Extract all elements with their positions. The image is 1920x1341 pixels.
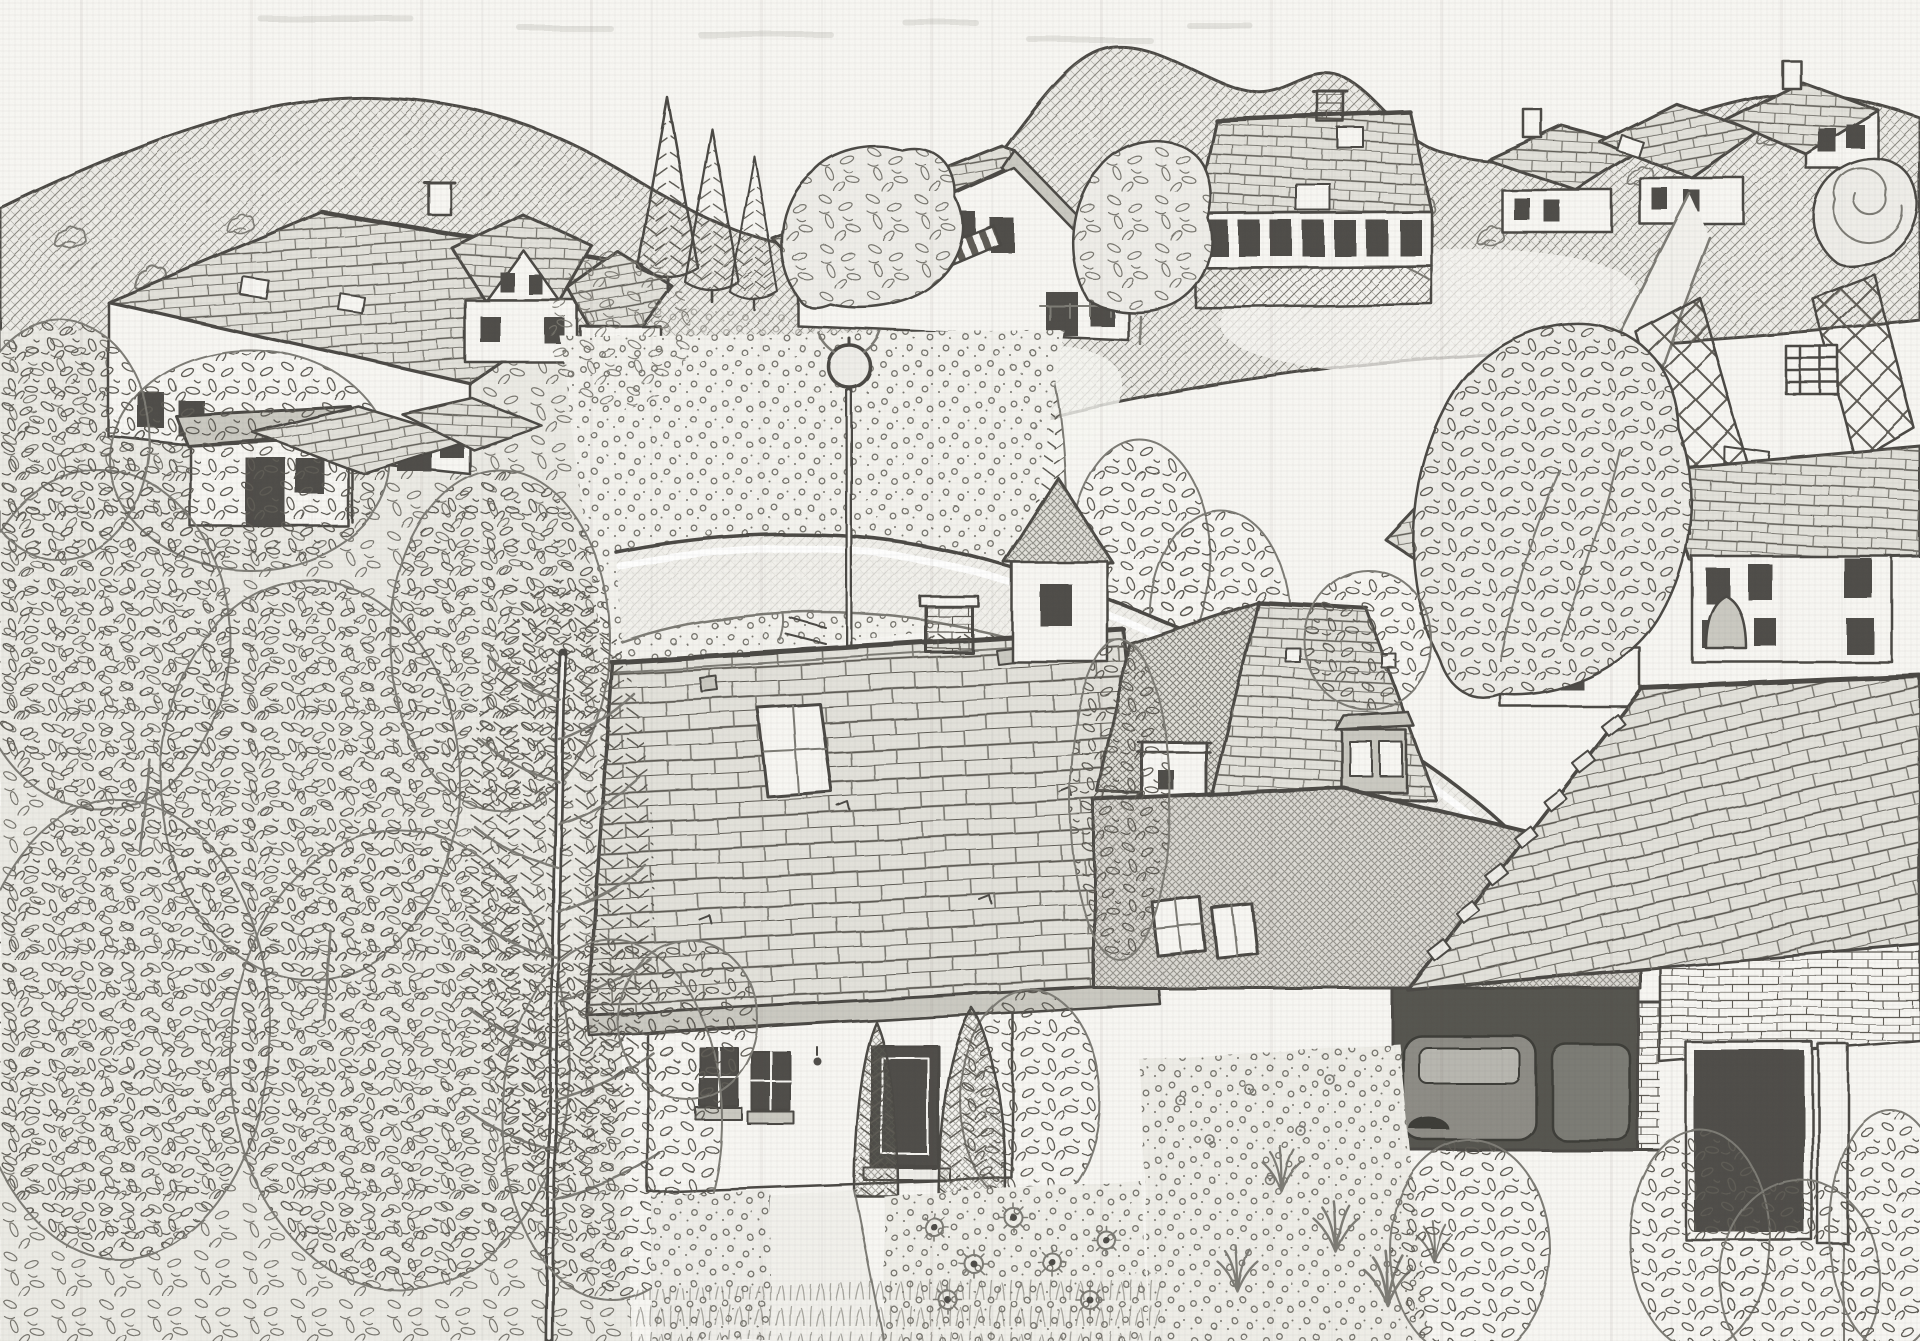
dormer-window — [1380, 742, 1402, 776]
window — [1818, 128, 1836, 152]
cluster-blend-canopy — [550, 250, 690, 410]
flower-box — [748, 1112, 794, 1124]
dormer-window — [1350, 742, 1372, 776]
farmhouse-skylight — [339, 294, 365, 314]
brick-chimney — [926, 604, 972, 652]
window — [1754, 618, 1776, 646]
dormer — [1336, 712, 1414, 792]
canopy-top-center — [781, 146, 963, 307]
seam-bush — [1070, 640, 1170, 960]
farmhouse-skylight — [241, 277, 269, 299]
brick-wall-right — [1630, 944, 1920, 1341]
window — [1846, 618, 1874, 654]
chimney — [1782, 60, 1800, 88]
window — [1544, 200, 1560, 222]
pencil-sketch-canvas: Pencil sketch of a hillside village with… — [0, 0, 1920, 1341]
garage-skylight — [1212, 904, 1257, 958]
white-house-right — [1652, 446, 1920, 662]
window — [1748, 564, 1772, 600]
windshield — [1420, 1048, 1520, 1084]
window — [480, 316, 500, 342]
scan-smudges — [260, 18, 1250, 40]
parked-car — [1404, 1036, 1630, 1140]
brick-chimney — [1318, 92, 1344, 122]
roof-skylight — [758, 704, 832, 797]
skylight — [1338, 128, 1364, 148]
left-bush-upper — [618, 940, 758, 1100]
skylight — [1296, 184, 1330, 210]
chimney — [428, 182, 450, 214]
sketch-page: Pencil sketch of a hillside village with… — [0, 0, 1920, 1341]
window — [1514, 198, 1530, 220]
window — [1040, 584, 1072, 626]
garage-skylight — [1152, 897, 1205, 956]
window — [1652, 188, 1668, 210]
road-bend-tree — [1304, 570, 1432, 710]
gable-window — [528, 274, 542, 294]
window — [1846, 124, 1864, 148]
rose-bush — [1390, 1140, 1550, 1341]
roof-vent — [1286, 648, 1300, 662]
balcony-band — [1196, 266, 1432, 308]
large-canopy-right — [1413, 323, 1691, 697]
roof-vent — [700, 676, 718, 692]
chimney — [1524, 110, 1542, 138]
gable-window — [500, 272, 514, 292]
window — [1844, 558, 1872, 598]
facade-window — [748, 1052, 794, 1124]
garden-gate — [1786, 346, 1838, 394]
